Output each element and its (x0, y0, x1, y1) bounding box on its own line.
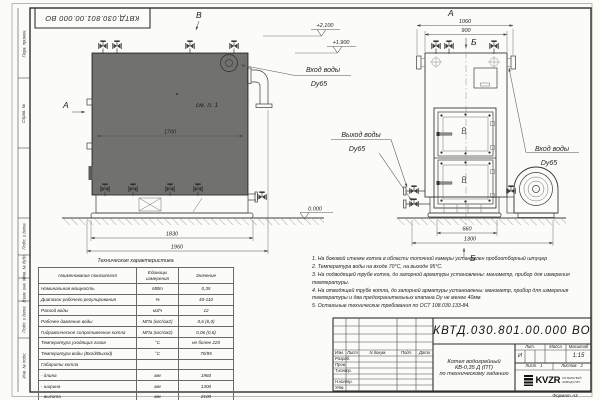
mass-header: Масса (545, 344, 566, 350)
side-view (62, 41, 324, 225)
elev-2100: +2.100 (317, 23, 335, 29)
row-utv: Утв. (333, 385, 361, 391)
spec-row: Температура воды (Вход/Выход)°С70/95 (39, 348, 234, 359)
col-units: Единицы измерения (137, 268, 179, 284)
spec-table: Наименование показателя Единицы измерени… (38, 267, 234, 400)
spec-row: Гидравлическое сопротивление котлаМПа (к… (39, 327, 234, 338)
top-stamp: КВТД.030.801.00.000 ВО (35, 8, 150, 28)
elev-0000: 0.000 (308, 207, 323, 213)
sheet-cell: Лист1 (515, 363, 553, 370)
lit-value: И (515, 350, 525, 363)
dim-1700: 1700 (164, 130, 177, 136)
logo-text: KVZR (535, 375, 560, 386)
dim-1830: 1830 (166, 232, 179, 238)
upper-door (437, 112, 495, 156)
logo-caption: КОТЕЛЬНЫЙ ЗАВОД РЭП (562, 377, 581, 385)
company-logo: KVZR КОТЕЛЬНЫЙ ЗАВОД РЭП (515, 370, 591, 391)
col-value: Значение (179, 268, 234, 284)
row-tkontr: Т.контр. (333, 368, 361, 374)
side-base (91, 195, 253, 218)
outlet-dn: Dy65 (349, 146, 365, 153)
view-label-a: А (62, 100, 69, 110)
format-label: Формат А3 (540, 393, 590, 398)
spec-row: Рабочее давление водыМПа (кгс/см2)0,6 (6… (39, 316, 234, 327)
spec-header-row: Наименование показателя Единицы измерени… (39, 268, 234, 284)
margin-cell-podp2: Подп. и дата (18, 301, 30, 338)
spec-row: Расход водым3/ч12 (39, 305, 234, 316)
spec-row: Диапазон рабочего регулирования%40-110 (39, 294, 234, 305)
technical-notes: 1. На боковой стенке котла в области топ… (312, 256, 590, 311)
ref-note: см. п. 1 (196, 102, 219, 109)
doc-number: КВТД.030.801.00.000 ВО (433, 318, 591, 344)
note-1: 1. На боковой стенке котла в области топ… (312, 256, 590, 263)
col-doc: N докум. (359, 350, 397, 356)
scale-value: 1:15 (566, 350, 591, 363)
side-top-valves (99, 41, 239, 54)
spec-row: - длинамм1960 (39, 370, 234, 381)
fan (507, 167, 558, 218)
center-marks (430, 56, 500, 68)
sheets-cell: Листов2 (553, 363, 591, 370)
note-3: 3. На подводящей трубе котла, до запорно… (312, 272, 590, 286)
margin-cell-dubl: Инв. № дубл. (18, 255, 30, 278)
col-name: Наименование показателя (39, 268, 137, 284)
panel-box (474, 68, 497, 88)
outlet-label: Выход воды (341, 131, 381, 139)
margin-cell-perv: Перв. примен. (18, 8, 30, 78)
dim-1960: 1960 (171, 245, 184, 251)
spec-table-title: Техническая характеристика (38, 258, 233, 264)
margin-cell-sprav: Справ. № (18, 78, 30, 148)
inlet-label-1: Вход воды (306, 66, 341, 74)
top-stamp-number: КВТД.030.801.00.000 ВО (45, 14, 139, 23)
note-5: 5. Остальные технические требования по О… (312, 303, 590, 310)
elev-1900: +1.900 (333, 40, 351, 46)
margin-cell-vzam: Взам. инв. № (18, 278, 30, 301)
inlet-label-2: Вход воды (535, 145, 570, 153)
drawing-sheet: 1700 1830 1960 В А см. п. 1 +2.100 +1.90… (0, 0, 600, 400)
spec-row: Температура уходящих газов°Сне более 220 (39, 337, 234, 348)
front-dimensions: 660 1300 Б Вход воды Dy65 (412, 68, 579, 263)
col-data: Дата (416, 350, 433, 356)
logo-mark-icon (524, 375, 533, 386)
outlet-elbow (248, 68, 273, 108)
margin-cell-podl: Инв. № подл. (18, 338, 30, 392)
drawing-title: Котел водогрейный КВ-0,35 Д (ПТ) по техн… (435, 346, 513, 389)
dim-900: 900 (461, 28, 471, 34)
dim-1060: 1060 (459, 19, 472, 25)
spec-row: Номинальная мощностьМВт0,35 (39, 284, 234, 295)
front-view-label: А (447, 8, 454, 18)
front-top-valves (432, 41, 499, 54)
section-label-top: Б (471, 37, 477, 47)
note-4: 4. На отводящей трубе котла, до запорной… (312, 288, 590, 302)
spec-row: Габариты котла (39, 359, 234, 370)
spec-row: - ширинамм1300 (39, 381, 234, 392)
margin-cell-podp1: Подп. и дата (18, 218, 30, 255)
spec-row: - высотамм2100 (39, 391, 234, 400)
inlet-dn-2: Dy65 (541, 160, 557, 167)
front-view: А 1060 900 Б (397, 8, 566, 230)
dim-1300: 1300 (464, 237, 477, 243)
note-2: 2. Температура воды на входе 70°С, на вы… (312, 264, 590, 271)
view-label-b: В (196, 10, 202, 20)
dim-660: 660 (462, 227, 472, 233)
inlet-dn-1: Dy65 (311, 81, 327, 88)
front-right-valve (507, 186, 516, 194)
col-podp: Подп. (397, 350, 416, 356)
